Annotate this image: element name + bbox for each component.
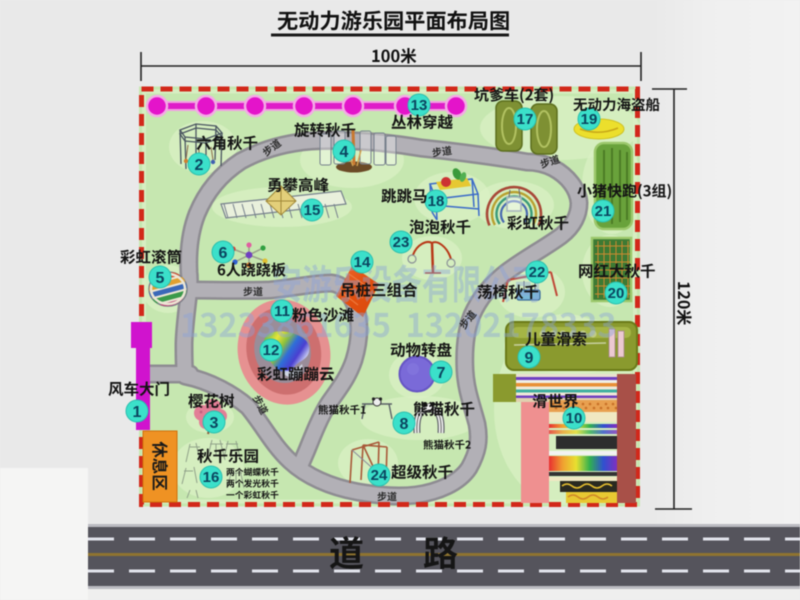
svg-text:10: 10 bbox=[566, 410, 583, 427]
svg-text:22: 22 bbox=[529, 264, 546, 281]
svg-text:19: 19 bbox=[581, 111, 598, 128]
svg-text:3: 3 bbox=[210, 415, 219, 432]
svg-text:21: 21 bbox=[595, 203, 612, 220]
svg-text:23: 23 bbox=[393, 234, 410, 251]
svg-text:8: 8 bbox=[400, 416, 409, 433]
svg-text:11: 11 bbox=[274, 303, 290, 320]
svg-text:6: 6 bbox=[219, 245, 228, 262]
svg-text:14: 14 bbox=[354, 254, 371, 271]
svg-text:18: 18 bbox=[428, 193, 445, 210]
svg-text:1: 1 bbox=[133, 404, 142, 421]
svg-text:16: 16 bbox=[203, 469, 220, 486]
svg-text:15: 15 bbox=[304, 202, 321, 219]
svg-text:17: 17 bbox=[517, 111, 534, 128]
svg-text:4: 4 bbox=[340, 144, 349, 161]
svg-text:2: 2 bbox=[195, 157, 204, 174]
svg-text:20: 20 bbox=[608, 285, 625, 302]
svg-text:24: 24 bbox=[371, 467, 388, 484]
svg-text:13: 13 bbox=[411, 97, 428, 114]
svg-text:7: 7 bbox=[437, 365, 446, 382]
svg-text:12: 12 bbox=[263, 342, 280, 359]
svg-text:9: 9 bbox=[525, 350, 534, 367]
svg-text:5: 5 bbox=[156, 270, 165, 287]
